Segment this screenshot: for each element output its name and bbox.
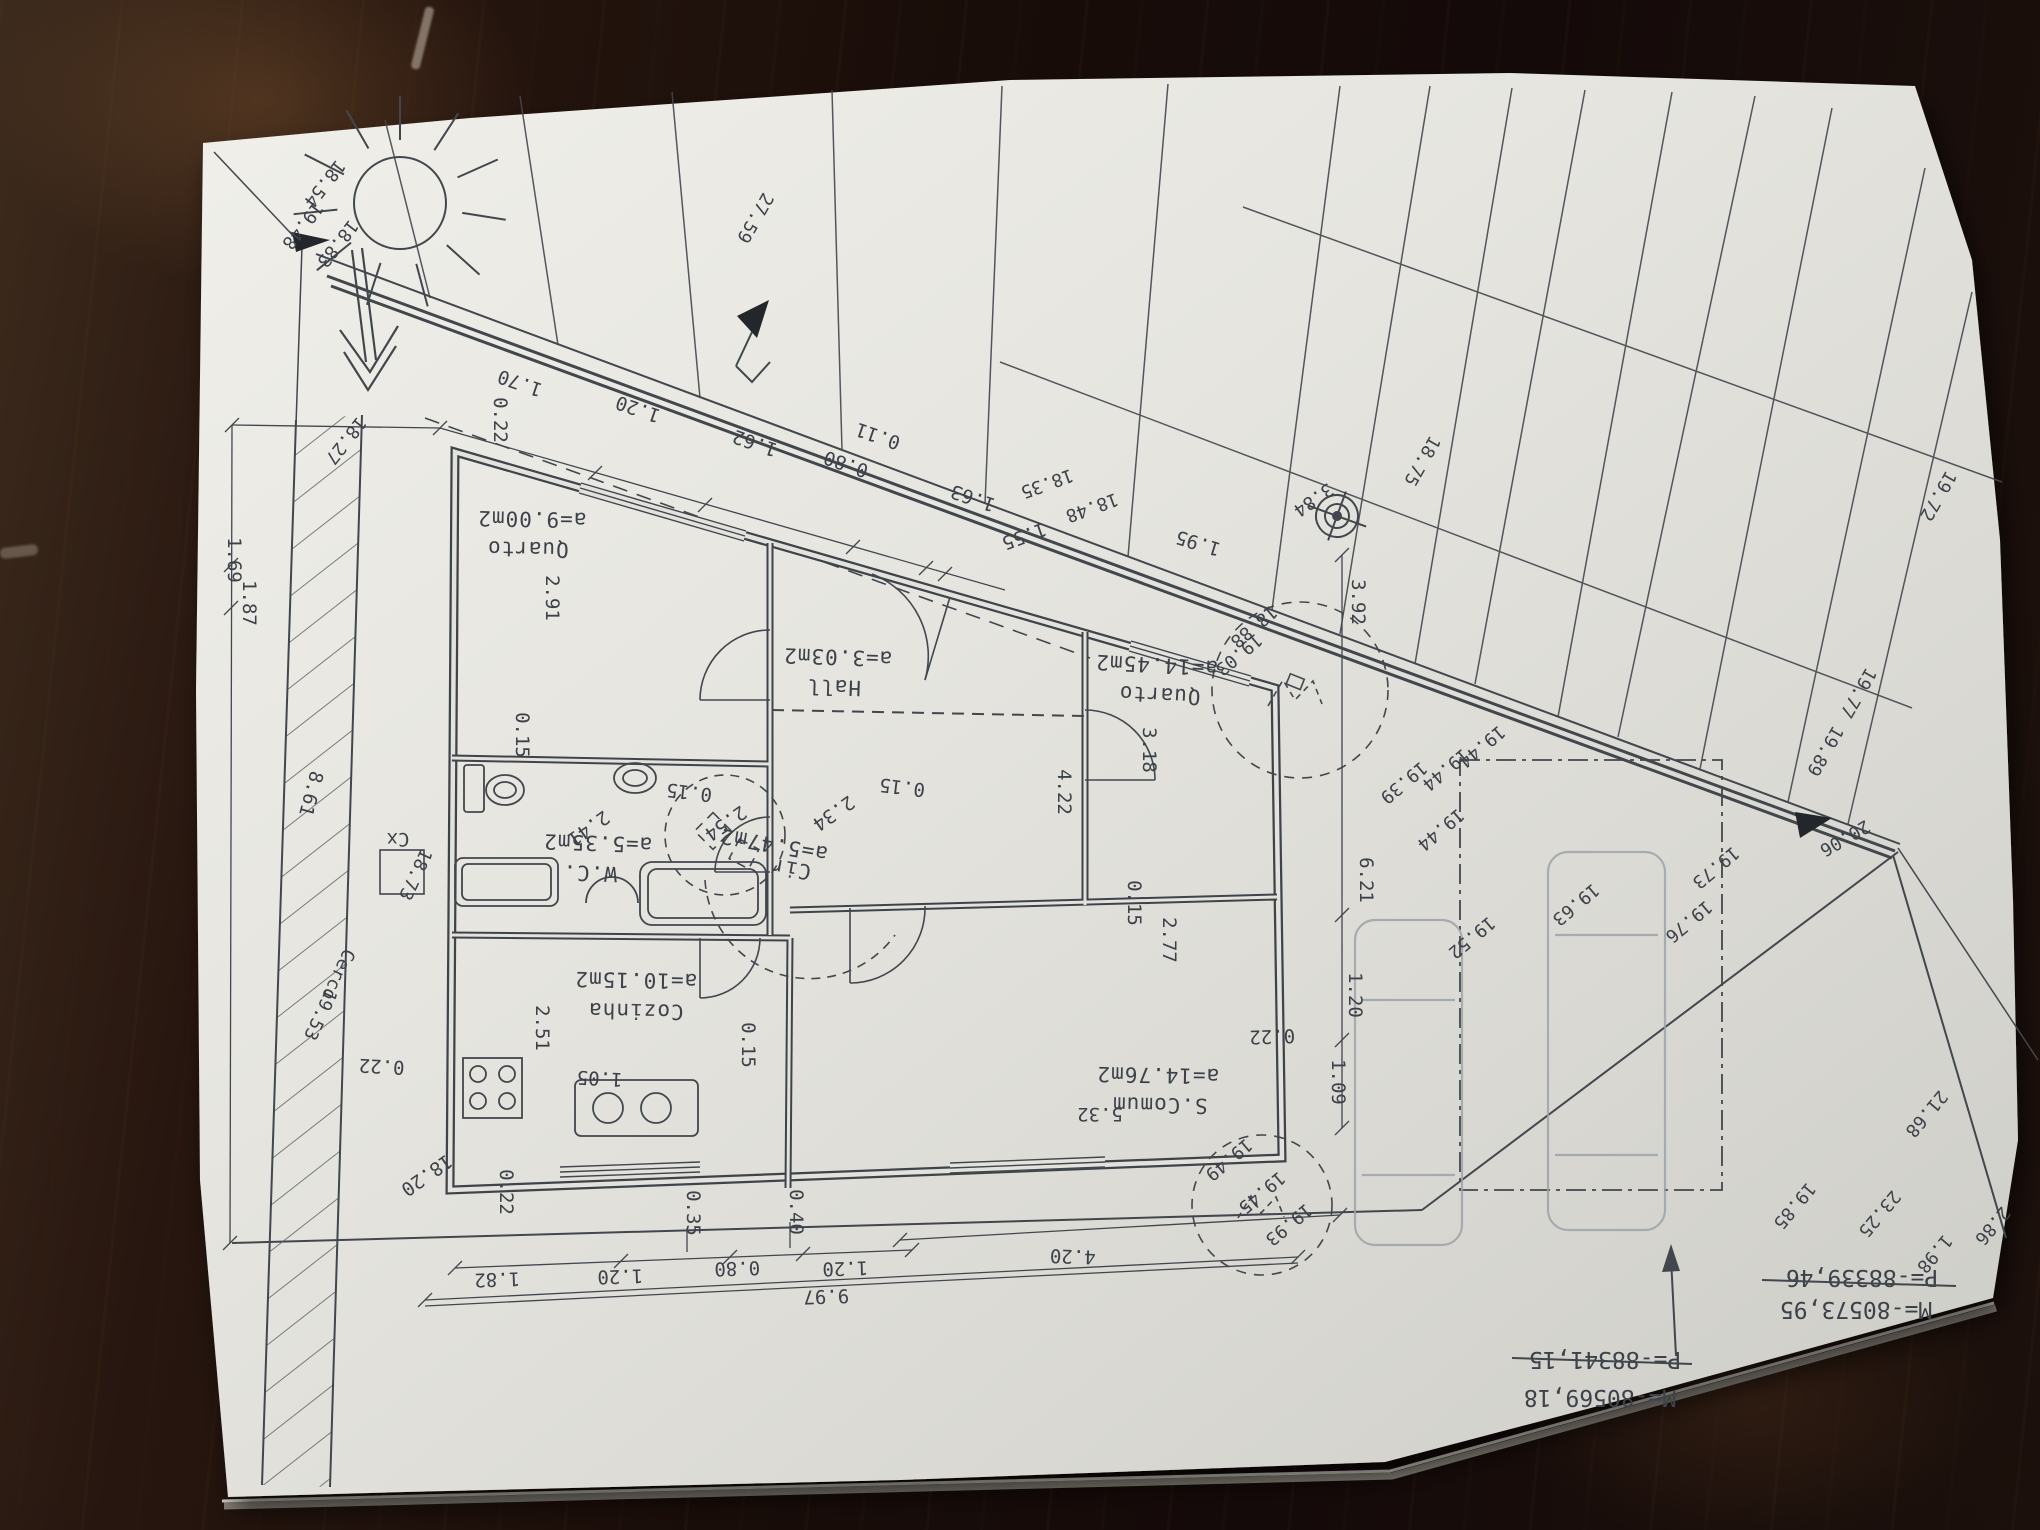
dim-label: 2.91 [541,575,563,621]
photo-of-floor-plan: Cx a=9.00m2 Quarto a=3.03m2 Hall a=14.45 [0,0,2040,1530]
dim-label: 1.05 [576,1066,623,1090]
dim-label: 0.22 [1249,1024,1296,1048]
room-area-label: a=14.76m2 [1096,1062,1219,1088]
room-area-label: a=9.00m2 [477,506,587,532]
dim-label: 1.87 [238,580,260,626]
dim-label: 3.92 [1347,579,1369,625]
dim-label: 1.20 [597,1264,644,1288]
paper-sheet [196,73,2018,1497]
room-name-label: S.Comum [1112,1092,1208,1118]
site-plan-drawing: Cx a=9.00m2 Quarto a=3.03m2 Hall a=14.45 [0,0,2040,1530]
room-area-label: a=3.03m2 [783,643,893,671]
dim-label: 6.21 [1355,857,1377,903]
dim-label: 1.09 [1327,1059,1349,1105]
room-name-label: Quarto [1118,681,1201,709]
dim-label: 0.22 [495,1169,517,1215]
dim-label: 1.20 [822,1256,869,1280]
dim-label: 2.51 [531,1005,553,1051]
dim-label: 3.18 [1138,727,1160,773]
dim-label: 2.77 [1158,917,1180,963]
room-name-label: Hall [806,674,861,700]
dim-label: 5.32 [1077,1103,1123,1125]
dim-label: 4.22 [1053,769,1075,815]
dim-label: 4.20 [1050,1244,1097,1268]
coordinate-label: P=-88339,46 [1786,1264,1938,1290]
dim-label: 0.15 [1123,880,1145,926]
dim-label: 0.15 [737,1022,759,1068]
dim-label: 0.80 [714,1256,761,1280]
dim-label: 1.20 [1344,972,1366,1018]
cx-label: Cx [387,828,410,850]
room-name-label: W.C. [562,860,617,886]
room-name-label: Quarto [487,536,569,561]
dim-label: 1.82 [474,1267,521,1291]
coordinate-label: M=-80573,95 [1780,1296,1932,1322]
room-name-label: Cozinha [588,998,684,1024]
dim-label: 0.35 [682,1190,704,1236]
dim-label: 0.15 [511,712,533,758]
room-area-label: a=10.15m2 [574,967,697,993]
coordinate-label: M=-80569,18 [1524,1384,1676,1410]
dim-label: 1.69 [223,537,245,583]
dim-label: 9.97 [803,1284,850,1308]
dim-label: 0.22 [489,397,511,443]
dim-label: 0.40 [785,1189,807,1235]
dim-label: 0.22 [358,1054,405,1078]
